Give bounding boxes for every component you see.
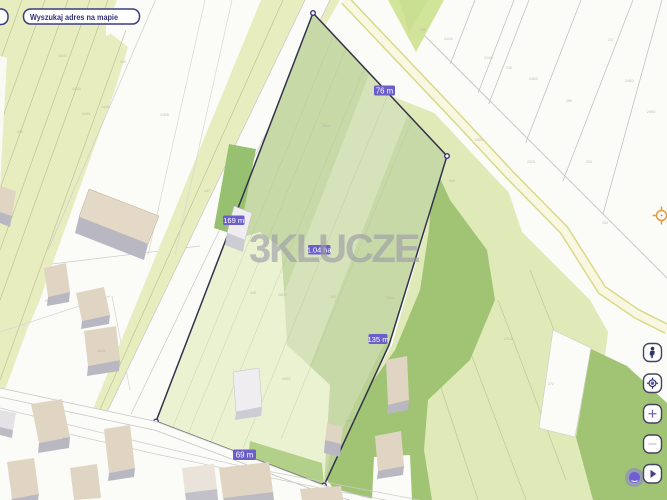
svg-text:169 m: 169 m [223,216,244,225]
svg-text:449/2: 449/2 [282,377,291,381]
svg-text:246/3: 246/3 [529,77,538,81]
svg-text:244/3: 244/3 [484,56,493,60]
svg-text:272: 272 [548,382,554,386]
svg-text:444/1: 444/1 [82,112,91,116]
svg-text:262/5: 262/5 [278,293,287,297]
svg-text:448: 448 [250,291,256,295]
svg-text:Wyszukaj adres na mapie: Wyszukaj adres na mapie [30,12,118,22]
svg-text:250: 250 [566,99,572,103]
svg-text:247: 247 [608,38,614,42]
svg-text:443/2: 443/2 [58,54,67,58]
svg-text:270: 270 [455,265,461,269]
svg-text:446: 446 [17,130,23,134]
svg-text:135 m: 135 m [367,335,388,344]
svg-text:76 m: 76 m [376,86,393,95]
svg-text:445/6: 445/6 [160,113,169,117]
svg-text:3KLUCZE: 3KLUCZE [249,227,421,271]
svg-text:252/1: 252/1 [527,160,536,164]
svg-text:248/3: 248/3 [625,79,634,83]
svg-text:440: 440 [120,60,126,64]
svg-text:264/2: 264/2 [386,296,395,300]
svg-text:443/3: 443/3 [72,87,81,91]
svg-text:243/4: 243/4 [444,37,453,41]
svg-text:254: 254 [602,221,608,225]
svg-text:253: 253 [586,160,592,164]
svg-text:451/2: 451/2 [97,349,106,353]
svg-text:242: 242 [420,28,426,32]
svg-text:265/3: 265/3 [345,419,354,423]
svg-text:447: 447 [204,189,210,193]
svg-text:444/2: 444/2 [101,105,110,109]
svg-text:249/2: 249/2 [647,110,656,114]
svg-text:263: 263 [330,295,336,299]
svg-text:271/2: 271/2 [504,337,513,341]
svg-text:261/2: 261/2 [322,124,331,128]
svg-text:452: 452 [45,299,51,303]
svg-text:245: 245 [506,66,512,70]
svg-text:69 m: 69 m [236,451,254,460]
svg-text:450: 450 [62,437,68,441]
svg-text:265/2: 265/2 [475,138,484,142]
svg-text:269: 269 [449,179,455,183]
